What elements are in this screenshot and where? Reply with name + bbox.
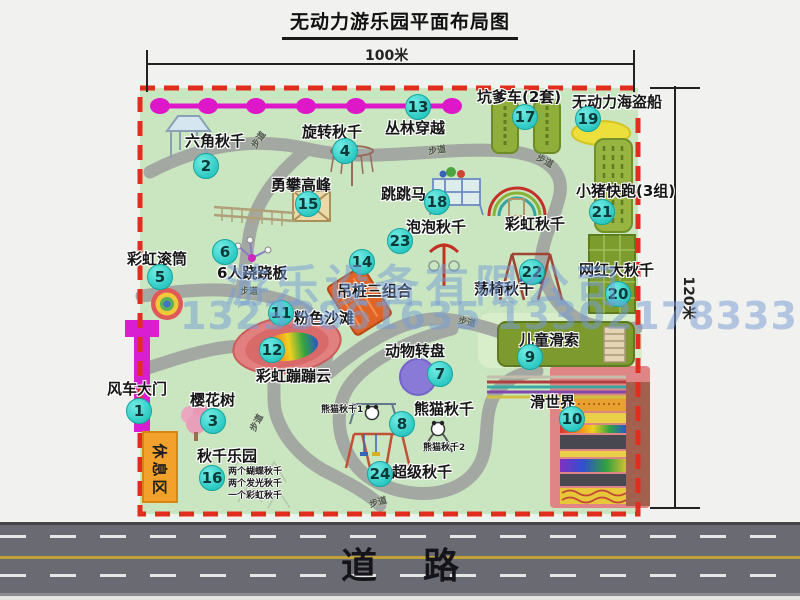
swing-park-item-1: 两个蝴蝶秋千 <box>228 468 282 477</box>
attraction-10-marker: 10 <box>559 406 585 432</box>
attraction-11-label: 粉色沙滩 <box>294 310 354 327</box>
attraction-3-marker: 3 <box>200 408 226 434</box>
swing-park-item-2: 两个发光秋千 <box>228 480 282 489</box>
attraction-5-marker: 5 <box>147 264 173 290</box>
attraction-17-marker: 17 <box>512 104 538 130</box>
attraction-14-label: 吊桩三组合 <box>337 283 412 300</box>
attraction-6-marker: 6 <box>212 239 238 265</box>
page-title: 无动力游乐园平面布局图 <box>282 7 518 40</box>
attraction-4-marker: 4 <box>332 138 358 164</box>
attraction-2-marker: 2 <box>193 153 219 179</box>
playground-plan: 无动力游乐园平面布局图 100米 120米 风车大门 六角秋千 樱花树 旋转秋千… <box>0 0 800 600</box>
attraction-24-marker: 24 <box>367 461 393 487</box>
attraction-2-label: 六角秋千 <box>185 133 245 150</box>
panda-swing-2-label: 熊猫秋千2 <box>423 444 465 453</box>
attraction-24-label: 超级秋千 <box>392 464 452 481</box>
attraction-15-marker: 15 <box>295 191 321 217</box>
attraction-18-label: 跳跳马 <box>381 186 426 203</box>
attraction-22-marker: 22 <box>519 259 545 285</box>
walkway-label: 步道 <box>240 284 258 297</box>
rest-area: 休息区 <box>142 431 178 503</box>
attraction-8-label: 熊猫秋千 <box>414 401 474 418</box>
attraction-19-marker: 19 <box>575 106 601 132</box>
rainbow-swing-label: 彩虹秋千 <box>505 216 565 233</box>
attraction-4-label: 旋转秋千 <box>302 124 362 141</box>
attraction-18-marker: 18 <box>424 189 450 215</box>
height-dimension-label: 120米 <box>679 273 699 323</box>
attraction-17-label: 坑爹车(2套) <box>477 89 561 106</box>
attraction-20-label: 网红大秋千 <box>579 262 654 279</box>
attraction-1-label: 风车大门 <box>107 381 167 398</box>
road: 道路 <box>0 522 800 596</box>
road-shoulder <box>0 596 800 600</box>
rainbow-roller-icon <box>151 288 183 320</box>
attraction-11-marker: 11 <box>268 300 294 326</box>
rest-area-label: 休息区 <box>150 435 171 507</box>
attraction-14-marker: 14 <box>349 249 375 275</box>
attraction-8-marker: 8 <box>389 411 415 437</box>
attraction-3-label: 樱花树 <box>190 392 235 409</box>
attraction-16-label: 秋千乐园 <box>197 448 257 465</box>
attraction-20-marker: 20 <box>605 281 631 307</box>
attraction-21-label: 小猪快跑(3组) <box>576 183 675 200</box>
attraction-13-marker: 13 <box>405 94 431 120</box>
road-label: 道路 <box>295 537 505 589</box>
attraction-9-marker: 9 <box>517 344 543 370</box>
attraction-23-label: 泡泡秋千 <box>406 219 466 236</box>
attraction-21-marker: 21 <box>589 199 615 225</box>
attraction-13-label: 丛林穿越 <box>385 120 445 137</box>
width-dimension-label: 100米 <box>365 45 408 65</box>
attraction-6-label: 6人跷跷板 <box>217 265 287 282</box>
walkway-label: 步道 <box>427 142 447 157</box>
attraction-12-marker: 12 <box>259 337 285 363</box>
swing-park-item-3: 一个彩虹秋千 <box>228 492 282 501</box>
panda-swing-1-label: 熊猫秋千1 <box>321 406 363 415</box>
attraction-23-marker: 23 <box>387 228 413 254</box>
attraction-12-label: 彩虹蹦蹦云 <box>256 368 331 385</box>
attraction-15-label: 勇攀高峰 <box>271 177 331 194</box>
attraction-16-marker: 16 <box>199 465 225 491</box>
attraction-7-marker: 7 <box>427 361 453 387</box>
attraction-1-marker: 1 <box>126 398 152 424</box>
attraction-7-label: 动物转盘 <box>385 343 445 360</box>
